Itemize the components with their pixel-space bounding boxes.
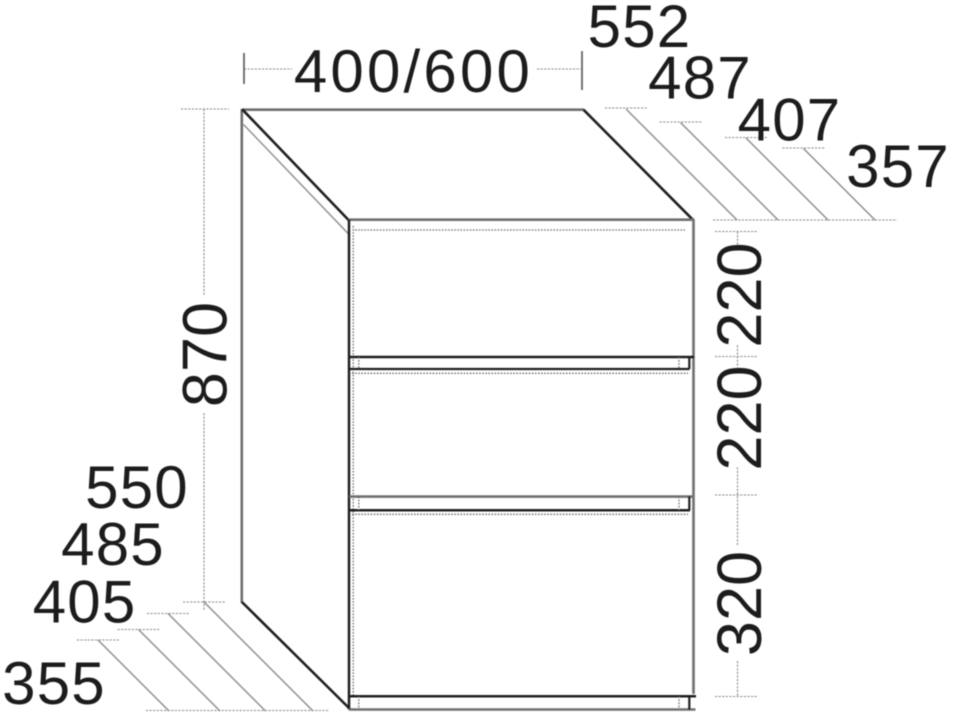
svg-text:870: 870 — [171, 302, 241, 407]
svg-text:220: 220 — [705, 242, 775, 347]
svg-text:400/600: 400/600 — [294, 38, 533, 105]
svg-text:355: 355 — [2, 650, 106, 717]
svg-text:220: 220 — [705, 365, 775, 470]
svg-text:320: 320 — [705, 551, 775, 656]
svg-text:407: 407 — [738, 87, 842, 154]
svg-text:487: 487 — [648, 45, 752, 112]
svg-text:405: 405 — [33, 569, 137, 636]
svg-text:357: 357 — [846, 133, 950, 200]
